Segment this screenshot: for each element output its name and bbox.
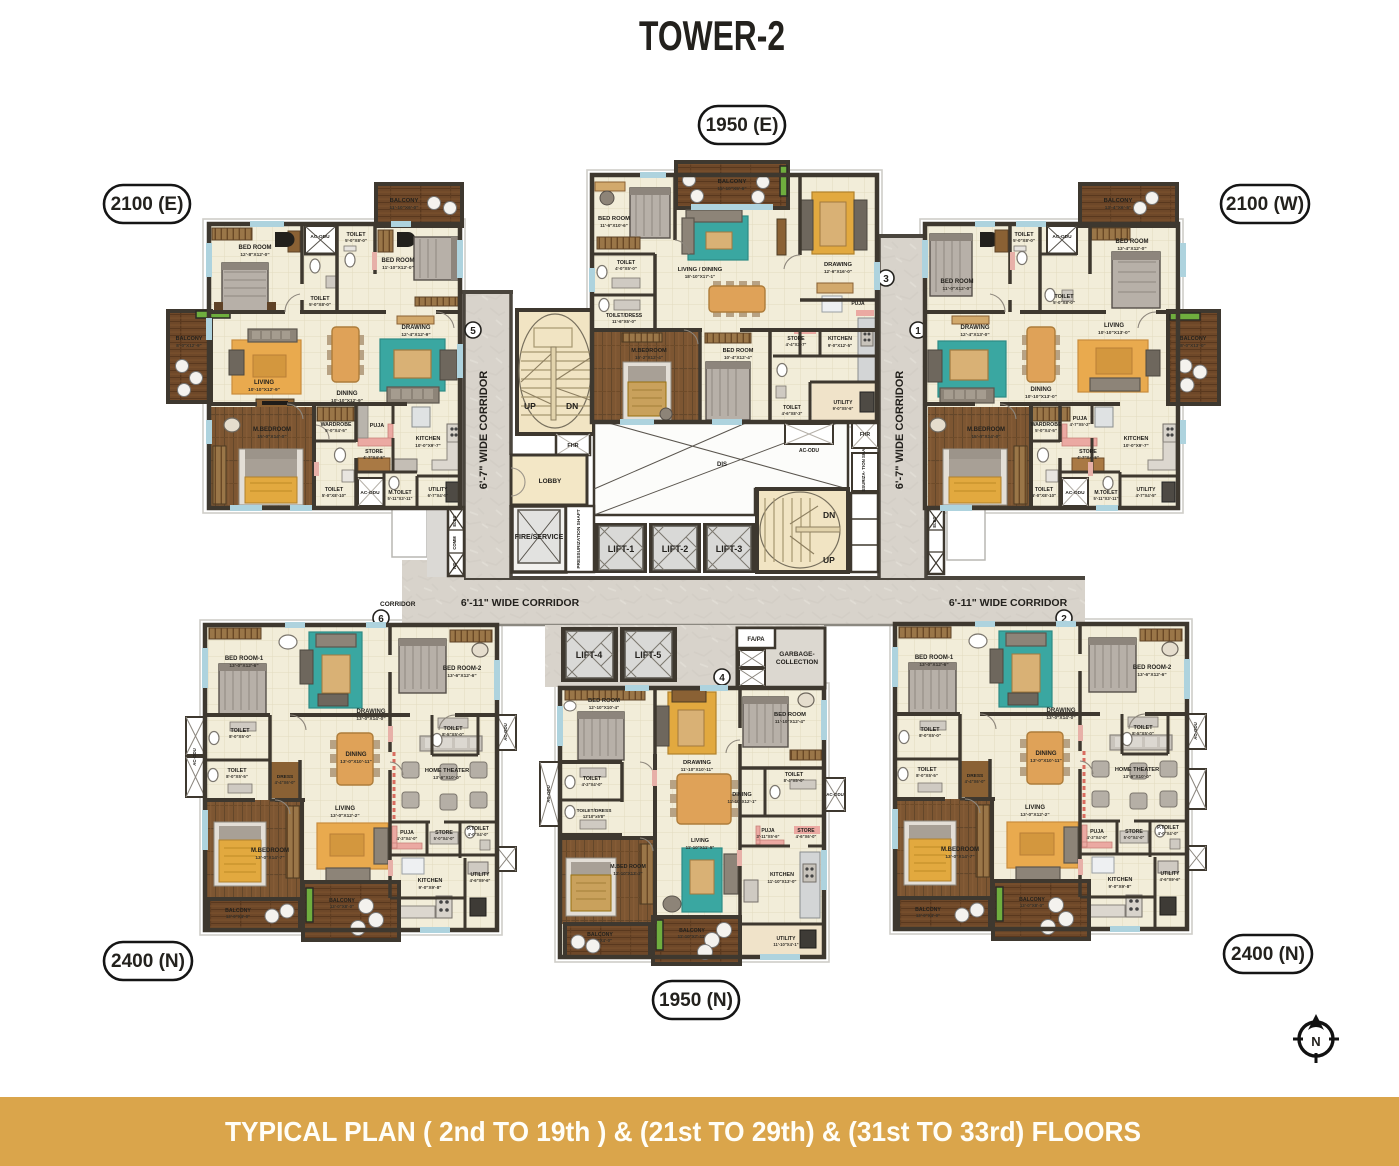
svg-text:15'-2"X12'-4": 15'-2"X12'-4": [635, 355, 663, 360]
svg-text:4'-6"X6'-0": 4'-6"X6'-0": [796, 834, 817, 839]
svg-text:BED ROOM: BED ROOM: [588, 698, 620, 704]
svg-text:LOBBY: LOBBY: [539, 478, 562, 485]
svg-text:LIVING: LIVING: [1025, 805, 1045, 811]
svg-text:5'-0"X8'-10": 5'-0"X8'-10": [1032, 493, 1056, 498]
svg-text:12'-6"X16'-0": 12'-6"X16'-0": [824, 269, 852, 274]
svg-text:LIVING: LIVING: [691, 838, 709, 844]
svg-text:AC-ODU: AC-ODU: [503, 723, 508, 741]
svg-text:DINING: DINING: [346, 752, 367, 758]
svg-text:CORRIDOR: CORRIDOR: [380, 601, 416, 608]
svg-text:BALCONY: BALCONY: [176, 336, 203, 342]
svg-text:4'-6"X9'-6": 4'-6"X9'-6": [1160, 877, 1181, 882]
svg-text:BED ROOM: BED ROOM: [723, 348, 754, 354]
svg-text:13'-6"X12'-6": 13'-6"X12'-6": [1137, 672, 1166, 678]
svg-text:11'-10"X6'-0": 11'-10"X6'-0": [390, 205, 419, 211]
svg-text:4'-7"X4'-5": 4'-7"X4'-5": [1136, 493, 1157, 498]
svg-text:4'-7"X5'-2": 4'-7"X5'-2": [1070, 422, 1091, 427]
svg-text:10'-10"X13'-0": 10'-10"X13'-0": [1025, 394, 1057, 400]
svg-text:12'-10"X10'-4": 12'-10"X10'-4": [589, 705, 620, 710]
svg-text:DIS: DIS: [717, 462, 727, 468]
svg-text:13'-0"X12'-2": 13'-0"X12'-2": [1020, 812, 1049, 818]
svg-text:LIFT-5: LIFT-5: [635, 650, 662, 660]
svg-text:BED ROOM-1: BED ROOM-1: [915, 655, 954, 661]
svg-text:13'-0"X4'-0": 13'-0"X4'-0": [916, 913, 940, 918]
svg-text:4'-0"X5'-0": 4'-0"X5'-0": [615, 266, 637, 271]
svg-text:BALCONY: BALCONY: [718, 179, 747, 185]
svg-text:13'-6"X10'-0": 13'-6"X10'-0": [433, 775, 461, 780]
svg-text:8'-0"X5'-0": 8'-0"X5'-0": [919, 733, 941, 738]
svg-text:2100 (E): 2100 (E): [111, 194, 184, 215]
svg-text:11'-10"X4'-1": 11'-10"X4'-1": [773, 942, 798, 947]
svg-text:10'-4"X12'-4": 10'-4"X12'-4": [724, 355, 752, 360]
svg-text:12'10"x5'8": 12'10"x5'8": [583, 814, 605, 819]
svg-text:8'-0"X5'-5": 8'-0"X5'-5": [226, 774, 248, 779]
svg-text:8'-0"X5'-0": 8'-0"X5'-0": [229, 734, 251, 739]
svg-text:11'-10"X12'-0": 11'-10"X12'-0": [382, 265, 414, 271]
svg-text:DINING: DINING: [1031, 387, 1052, 393]
svg-text:4'-0"X4'-0": 4'-0"X4'-0": [468, 832, 489, 837]
svg-text:11'-10"X10'-11": 11'-10"X10'-11": [681, 767, 714, 772]
svg-text:5'-11"X3'-11": 5'-11"X3'-11": [1093, 496, 1118, 501]
svg-text:6'-11" WIDE CORRIDOR: 6'-11" WIDE CORRIDOR: [461, 597, 580, 609]
svg-text:1950 (E): 1950 (E): [706, 115, 779, 136]
svg-text:DINING: DINING: [732, 792, 752, 798]
svg-text:BED ROOM: BED ROOM: [774, 712, 806, 718]
svg-text:UP: UP: [823, 555, 835, 565]
svg-text:8'-0"X5'-5": 8'-0"X5'-5": [916, 773, 938, 778]
svg-text:DRAWING: DRAWING: [683, 760, 712, 766]
svg-text:18'-10"X17'-1": 18'-10"X17'-1": [685, 274, 716, 279]
svg-text:13'-0"X12'-6": 13'-0"X12'-6": [919, 662, 948, 668]
svg-text:AC-ODU: AC-ODU: [1065, 490, 1085, 496]
svg-text:LIFT-4: LIFT-4: [576, 650, 603, 660]
svg-text:BED ROOM: BED ROOM: [1116, 239, 1149, 245]
svg-text:4'-2"X4'-0": 4'-2"X4'-0": [582, 782, 603, 787]
svg-text:DINING: DINING: [1036, 751, 1057, 757]
svg-text:M.BEDROOM: M.BEDROOM: [251, 848, 289, 854]
svg-text:AC-ODU: AC-ODU: [310, 234, 330, 240]
svg-text:KITCHEN: KITCHEN: [1108, 877, 1133, 883]
svg-text:DRAWING: DRAWING: [357, 709, 386, 715]
svg-text:ELEC: ELEC: [932, 516, 937, 527]
svg-text:9'-0"X9'-8": 9'-0"X9'-8": [1109, 884, 1132, 889]
svg-text:8'-0"X12'-9": 8'-0"X12'-9": [176, 343, 201, 348]
svg-text:5'-0"X4'-5": 5'-0"X4'-5": [325, 428, 347, 433]
svg-text:AC-ODU: AC-ODU: [546, 785, 551, 803]
svg-text:15'-10"X5'-6": 15'-10"X5'-6": [717, 186, 746, 192]
svg-text:4'-4"X6'-0": 4'-4"X6'-0": [965, 779, 986, 784]
svg-text:13'-0"X10'-11": 13'-0"X10'-11": [340, 759, 372, 765]
svg-text:9'-0"X5'-6": 9'-0"X5'-6": [833, 406, 854, 411]
svg-text:DN: DN: [823, 510, 835, 520]
svg-text:10'-0"X9'-7": 10'-0"X9'-7": [415, 443, 440, 448]
svg-text:M.BED ROOM: M.BED ROOM: [610, 864, 646, 870]
svg-text:LIFT-3: LIFT-3: [716, 544, 743, 554]
svg-text:3'-11"X5'-6": 3'-11"X5'-6": [757, 834, 780, 839]
svg-text:LIVING: LIVING: [1104, 323, 1124, 329]
svg-text:8'-4"X5'-0": 8'-4"X5'-0": [784, 778, 805, 783]
svg-text:1: 1: [915, 326, 921, 337]
svg-text:5'-0"X8'-0": 5'-0"X8'-0": [1053, 300, 1075, 305]
svg-text:4: 4: [719, 673, 725, 684]
svg-text:11'-10"X11'-5": 11'-10"X11'-5": [686, 845, 715, 850]
svg-text:11'-6"X10'-6": 11'-6"X10'-6": [600, 223, 628, 228]
svg-text:13'-0"X8'-0": 13'-0"X8'-0": [1020, 903, 1044, 908]
svg-text:2100 (W): 2100 (W): [1226, 194, 1304, 215]
svg-text:13'-0"X4'-0": 13'-0"X4'-0": [226, 914, 250, 919]
svg-text:DN: DN: [566, 401, 578, 411]
svg-text:KITCHEN: KITCHEN: [828, 336, 852, 342]
svg-text:M.BEDROOM: M.BEDROOM: [941, 847, 979, 853]
svg-text:5'-0"X8'-0": 5'-0"X8'-0": [1013, 238, 1035, 243]
svg-text:TOWER-2: TOWER-2: [639, 12, 785, 59]
svg-text:11'-10"X13'-0": 11'-10"X13'-0": [768, 879, 797, 884]
svg-text:11'-10"X7'-11": 11'-10"X7'-11": [678, 934, 707, 939]
svg-text:HOME THEATER: HOME THEATER: [425, 768, 469, 774]
svg-text:6'-7"X4'-5": 6'-7"X4'-5": [428, 493, 449, 498]
svg-text:LIFT-2: LIFT-2: [662, 544, 689, 554]
svg-text:9'-0"X12'-5": 9'-0"X12'-5": [828, 343, 852, 348]
svg-text:12'-4"X13'-0": 12'-4"X13'-0": [960, 332, 989, 338]
svg-text:AC-ODU: AC-ODU: [1052, 234, 1072, 240]
svg-text:12'-8"X12'-0": 12'-8"X12'-0": [240, 252, 269, 258]
svg-text:LIVING: LIVING: [254, 380, 274, 386]
svg-text:9'-0"X9'-8": 9'-0"X9'-8": [419, 885, 442, 890]
svg-text:13'-6"X10'-0": 13'-6"X10'-0": [1123, 774, 1151, 779]
svg-text:13'-0"X14'-7": 13'-0"X14'-7": [255, 855, 284, 861]
svg-text:5'-0"X4'-5": 5'-0"X4'-5": [1035, 428, 1057, 433]
svg-text:6'-7" WIDE CORRIDOR: 6'-7" WIDE CORRIDOR: [894, 371, 906, 490]
svg-text:BALCONY: BALCONY: [1180, 336, 1207, 342]
svg-text:ELEC: ELEC: [452, 515, 457, 526]
svg-text:15'-0"X14'-0": 15'-0"X14'-0": [971, 434, 1000, 440]
svg-text:HOME THEATER: HOME THEATER: [1115, 767, 1159, 773]
svg-text:FA/PA: FA/PA: [747, 637, 765, 643]
svg-text:11'-10"X12'-4": 11'-10"X12'-4": [775, 719, 805, 724]
svg-text:5'-11"X3'-11": 5'-11"X3'-11": [387, 496, 412, 501]
svg-text:4'-7"X4'-5": 4'-7"X4'-5": [363, 455, 385, 460]
svg-text:10'-0"X9'-7": 10'-0"X9'-7": [1123, 443, 1148, 448]
svg-text:8'-5"X5'-0": 8'-5"X5'-0": [1132, 731, 1154, 736]
svg-text:AC-ODU: AC-ODU: [192, 748, 197, 766]
svg-text:FHR: FHR: [567, 443, 578, 449]
svg-text:M.BEDROOM: M.BEDROOM: [967, 427, 1005, 433]
svg-text:COMM: COMM: [452, 536, 457, 550]
svg-text:WS: WS: [452, 562, 457, 569]
svg-text:KITCHEN: KITCHEN: [770, 872, 794, 878]
svg-text:AC-ODU: AC-ODU: [826, 792, 844, 797]
svg-text:DRAWING: DRAWING: [961, 325, 990, 331]
svg-text:KITCHEN: KITCHEN: [418, 878, 443, 884]
svg-text:6'-7" WIDE CORRIDOR: 6'-7" WIDE CORRIDOR: [478, 371, 490, 490]
svg-text:DINING: DINING: [337, 391, 358, 397]
svg-text:4'-0"X4'-0": 4'-0"X4'-0": [1158, 831, 1179, 836]
svg-text:AC-ODU: AC-ODU: [360, 490, 380, 496]
svg-text:DRAWING: DRAWING: [824, 262, 853, 268]
svg-text:11'-0"X12'-0": 11'-0"X12'-0": [943, 286, 972, 292]
svg-text:KITCHEN: KITCHEN: [1124, 436, 1149, 442]
svg-text:AC-ODU: AC-ODU: [799, 448, 819, 454]
svg-text:13'-0"X8'-0": 13'-0"X8'-0": [330, 904, 354, 909]
svg-text:13'-0"X14'-7": 13'-0"X14'-7": [945, 854, 974, 860]
svg-text:4'-6"X9'-6": 4'-6"X9'-6": [470, 878, 491, 883]
svg-text:15'-0"X14'-0": 15'-0"X14'-0": [257, 434, 286, 440]
svg-text:13'-0"X14'-0": 13'-0"X14'-0": [1046, 715, 1075, 721]
svg-text:FHR: FHR: [860, 432, 871, 438]
svg-text:COLLECTION: COLLECTION: [776, 659, 819, 666]
svg-text:5'-0"X8'-0": 5'-0"X8'-0": [309, 302, 331, 307]
svg-text:BED ROOM-1: BED ROOM-1: [225, 656, 264, 662]
svg-text:6'-11" WIDE CORRIDOR: 6'-11" WIDE CORRIDOR: [949, 597, 1068, 609]
svg-text:M.BEDROOM: M.BEDROOM: [253, 427, 291, 433]
svg-text:8'-0"X13'-0": 8'-0"X13'-0": [1180, 343, 1205, 348]
svg-text:10'-10"X12'-9": 10'-10"X12'-9": [331, 398, 363, 404]
svg-text:13'-6"X12'-6": 13'-6"X12'-6": [447, 673, 476, 679]
svg-text:PUJA: PUJA: [370, 423, 384, 429]
svg-text:13'-4"X6'-5": 13'-4"X6'-5": [1105, 205, 1132, 211]
svg-text:1950 (N): 1950 (N): [659, 990, 733, 1011]
svg-text:5'-0"X4'-0": 5'-0"X4'-0": [434, 836, 455, 841]
svg-text:BED ROOM: BED ROOM: [941, 279, 974, 285]
svg-text:DRAWING: DRAWING: [1047, 708, 1076, 714]
svg-text:4'-4"X6'-0": 4'-4"X6'-0": [275, 780, 296, 785]
svg-text:PUJA: PUJA: [851, 301, 865, 307]
svg-text:11'-6"X5'-0": 11'-6"X5'-0": [612, 319, 636, 324]
svg-text:BED ROOM: BED ROOM: [239, 245, 272, 251]
svg-text:AC-ODU: AC-ODU: [1193, 722, 1198, 740]
svg-text:4'-4"X3'-7": 4'-4"X3'-7": [786, 342, 807, 347]
svg-text:TYPICAL PLAN ( 2nd TO 19th ) &: TYPICAL PLAN ( 2nd TO 19th ) & (21st TO …: [225, 1116, 1141, 1147]
svg-text:12'-4"X12'-9": 12'-4"X12'-9": [401, 332, 430, 338]
svg-text:4'-6"X8'-3": 4'-6"X8'-3": [782, 411, 803, 416]
svg-text:5'-0"X4'-0": 5'-0"X4'-0": [1124, 835, 1145, 840]
svg-text:11'-10"X12'-1": 11'-10"X12'-1": [728, 799, 757, 804]
svg-text:5'-0"X8'-0": 5'-0"X8'-0": [345, 238, 367, 243]
svg-text:M.BEDROOM: M.BEDROOM: [631, 348, 667, 354]
svg-text:4'-7"X4'-5": 4'-7"X4'-5": [1077, 455, 1099, 460]
svg-text:5'-0"X8'-10": 5'-0"X8'-10": [322, 493, 346, 498]
svg-text:KITCHEN: KITCHEN: [416, 436, 441, 442]
svg-text:BALCONY: BALCONY: [390, 198, 419, 204]
svg-text:12'-10"X13'-2": 12'-10"X13'-2": [613, 871, 642, 876]
svg-text:5: 5: [470, 326, 476, 337]
svg-text:DRAWING: DRAWING: [402, 325, 431, 331]
svg-text:BED ROOM-2: BED ROOM-2: [1133, 665, 1172, 671]
svg-text:BED ROOM-2: BED ROOM-2: [443, 666, 482, 672]
svg-text:PRESSURIZATION SHAFT: PRESSURIZATION SHAFT: [576, 509, 582, 568]
svg-text:4'-3"X4'-0": 4'-3"X4'-0": [1087, 835, 1108, 840]
svg-text:2400 (N): 2400 (N): [1231, 944, 1305, 965]
svg-text:13'-0"X14'-0": 13'-0"X14'-0": [356, 716, 385, 722]
svg-text:GARBAGE-: GARBAGE-: [779, 651, 814, 658]
svg-text:13'-0"X10'-11": 13'-0"X10'-11": [1030, 758, 1062, 764]
svg-text:LIFT-1: LIFT-1: [608, 544, 635, 554]
svg-text:UP: UP: [524, 401, 536, 411]
svg-text:8'-5"X5'-0": 8'-5"X5'-0": [442, 732, 464, 737]
svg-text:13'-0"X12'-2": 13'-0"X12'-2": [330, 813, 359, 819]
svg-text:3: 3: [883, 274, 889, 285]
svg-text:13'-0"X12'-6": 13'-0"X12'-6": [229, 663, 258, 669]
svg-text:BALCONY: BALCONY: [1104, 198, 1133, 204]
svg-text:4'-3"X4'-0": 4'-3"X4'-0": [397, 836, 418, 841]
svg-text:N: N: [1311, 1034, 1320, 1049]
svg-text:BED ROOM: BED ROOM: [382, 258, 415, 264]
svg-text:10'-10"X13'-0": 10'-10"X13'-0": [1098, 330, 1130, 336]
svg-text:10'-10"X12'-9": 10'-10"X12'-9": [248, 387, 280, 393]
svg-text:BED ROOM: BED ROOM: [598, 216, 630, 222]
svg-text:FIRE/SERVICE: FIRE/SERVICE: [515, 534, 564, 541]
svg-text:13'-4"X12'-0": 13'-4"X12'-0": [1117, 246, 1146, 252]
svg-text:LIVING / DINING: LIVING / DINING: [678, 267, 723, 273]
svg-text:2400 (N): 2400 (N): [111, 951, 185, 972]
svg-text:LIVING: LIVING: [335, 806, 355, 812]
